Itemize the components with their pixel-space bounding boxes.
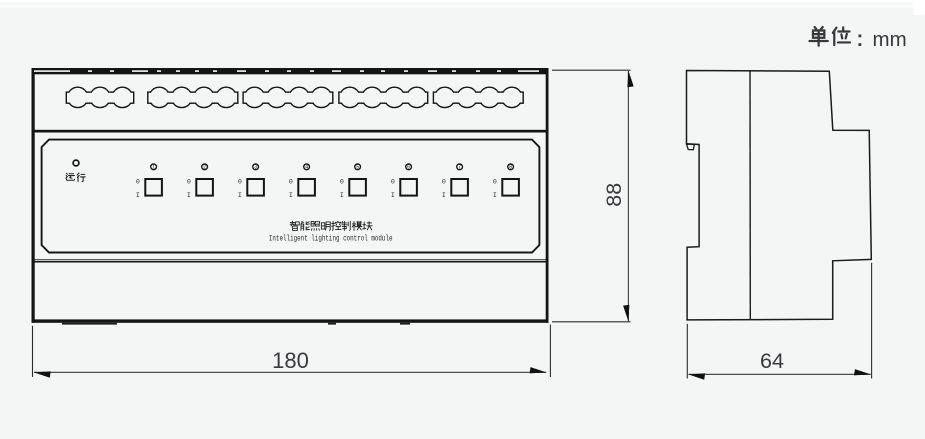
svg-text:64: 64: [760, 349, 784, 373]
svg-text:1: 1: [152, 165, 155, 171]
svg-text:I: I: [238, 192, 242, 199]
svg-text:I: I: [289, 192, 293, 199]
svg-text:5: 5: [356, 165, 359, 171]
svg-text:0: 0: [493, 178, 497, 185]
svg-text:I: I: [340, 192, 344, 199]
svg-text:8: 8: [509, 165, 512, 171]
svg-text:88: 88: [602, 183, 626, 207]
svg-text:4: 4: [305, 165, 308, 171]
svg-text:2: 2: [203, 165, 206, 171]
svg-text:0: 0: [340, 178, 344, 185]
svg-text:I: I: [493, 192, 497, 199]
svg-text:0: 0: [442, 178, 446, 185]
svg-text:0: 0: [289, 178, 293, 185]
svg-text:0: 0: [187, 178, 191, 185]
svg-text:6: 6: [407, 165, 410, 171]
svg-text:mm: mm: [873, 28, 907, 51]
svg-text:7: 7: [458, 165, 461, 171]
svg-text:180: 180: [272, 348, 309, 373]
svg-text:Intelligent lighting control m: Intelligent lighting control module: [269, 235, 393, 244]
svg-text:I: I: [442, 192, 446, 199]
svg-text:I: I: [187, 192, 191, 199]
svg-text:3: 3: [254, 165, 257, 171]
svg-text:I: I: [136, 192, 140, 199]
svg-text:0: 0: [391, 178, 395, 185]
svg-text:I: I: [391, 192, 395, 199]
svg-text:0: 0: [136, 178, 140, 185]
svg-text:0: 0: [238, 178, 242, 185]
